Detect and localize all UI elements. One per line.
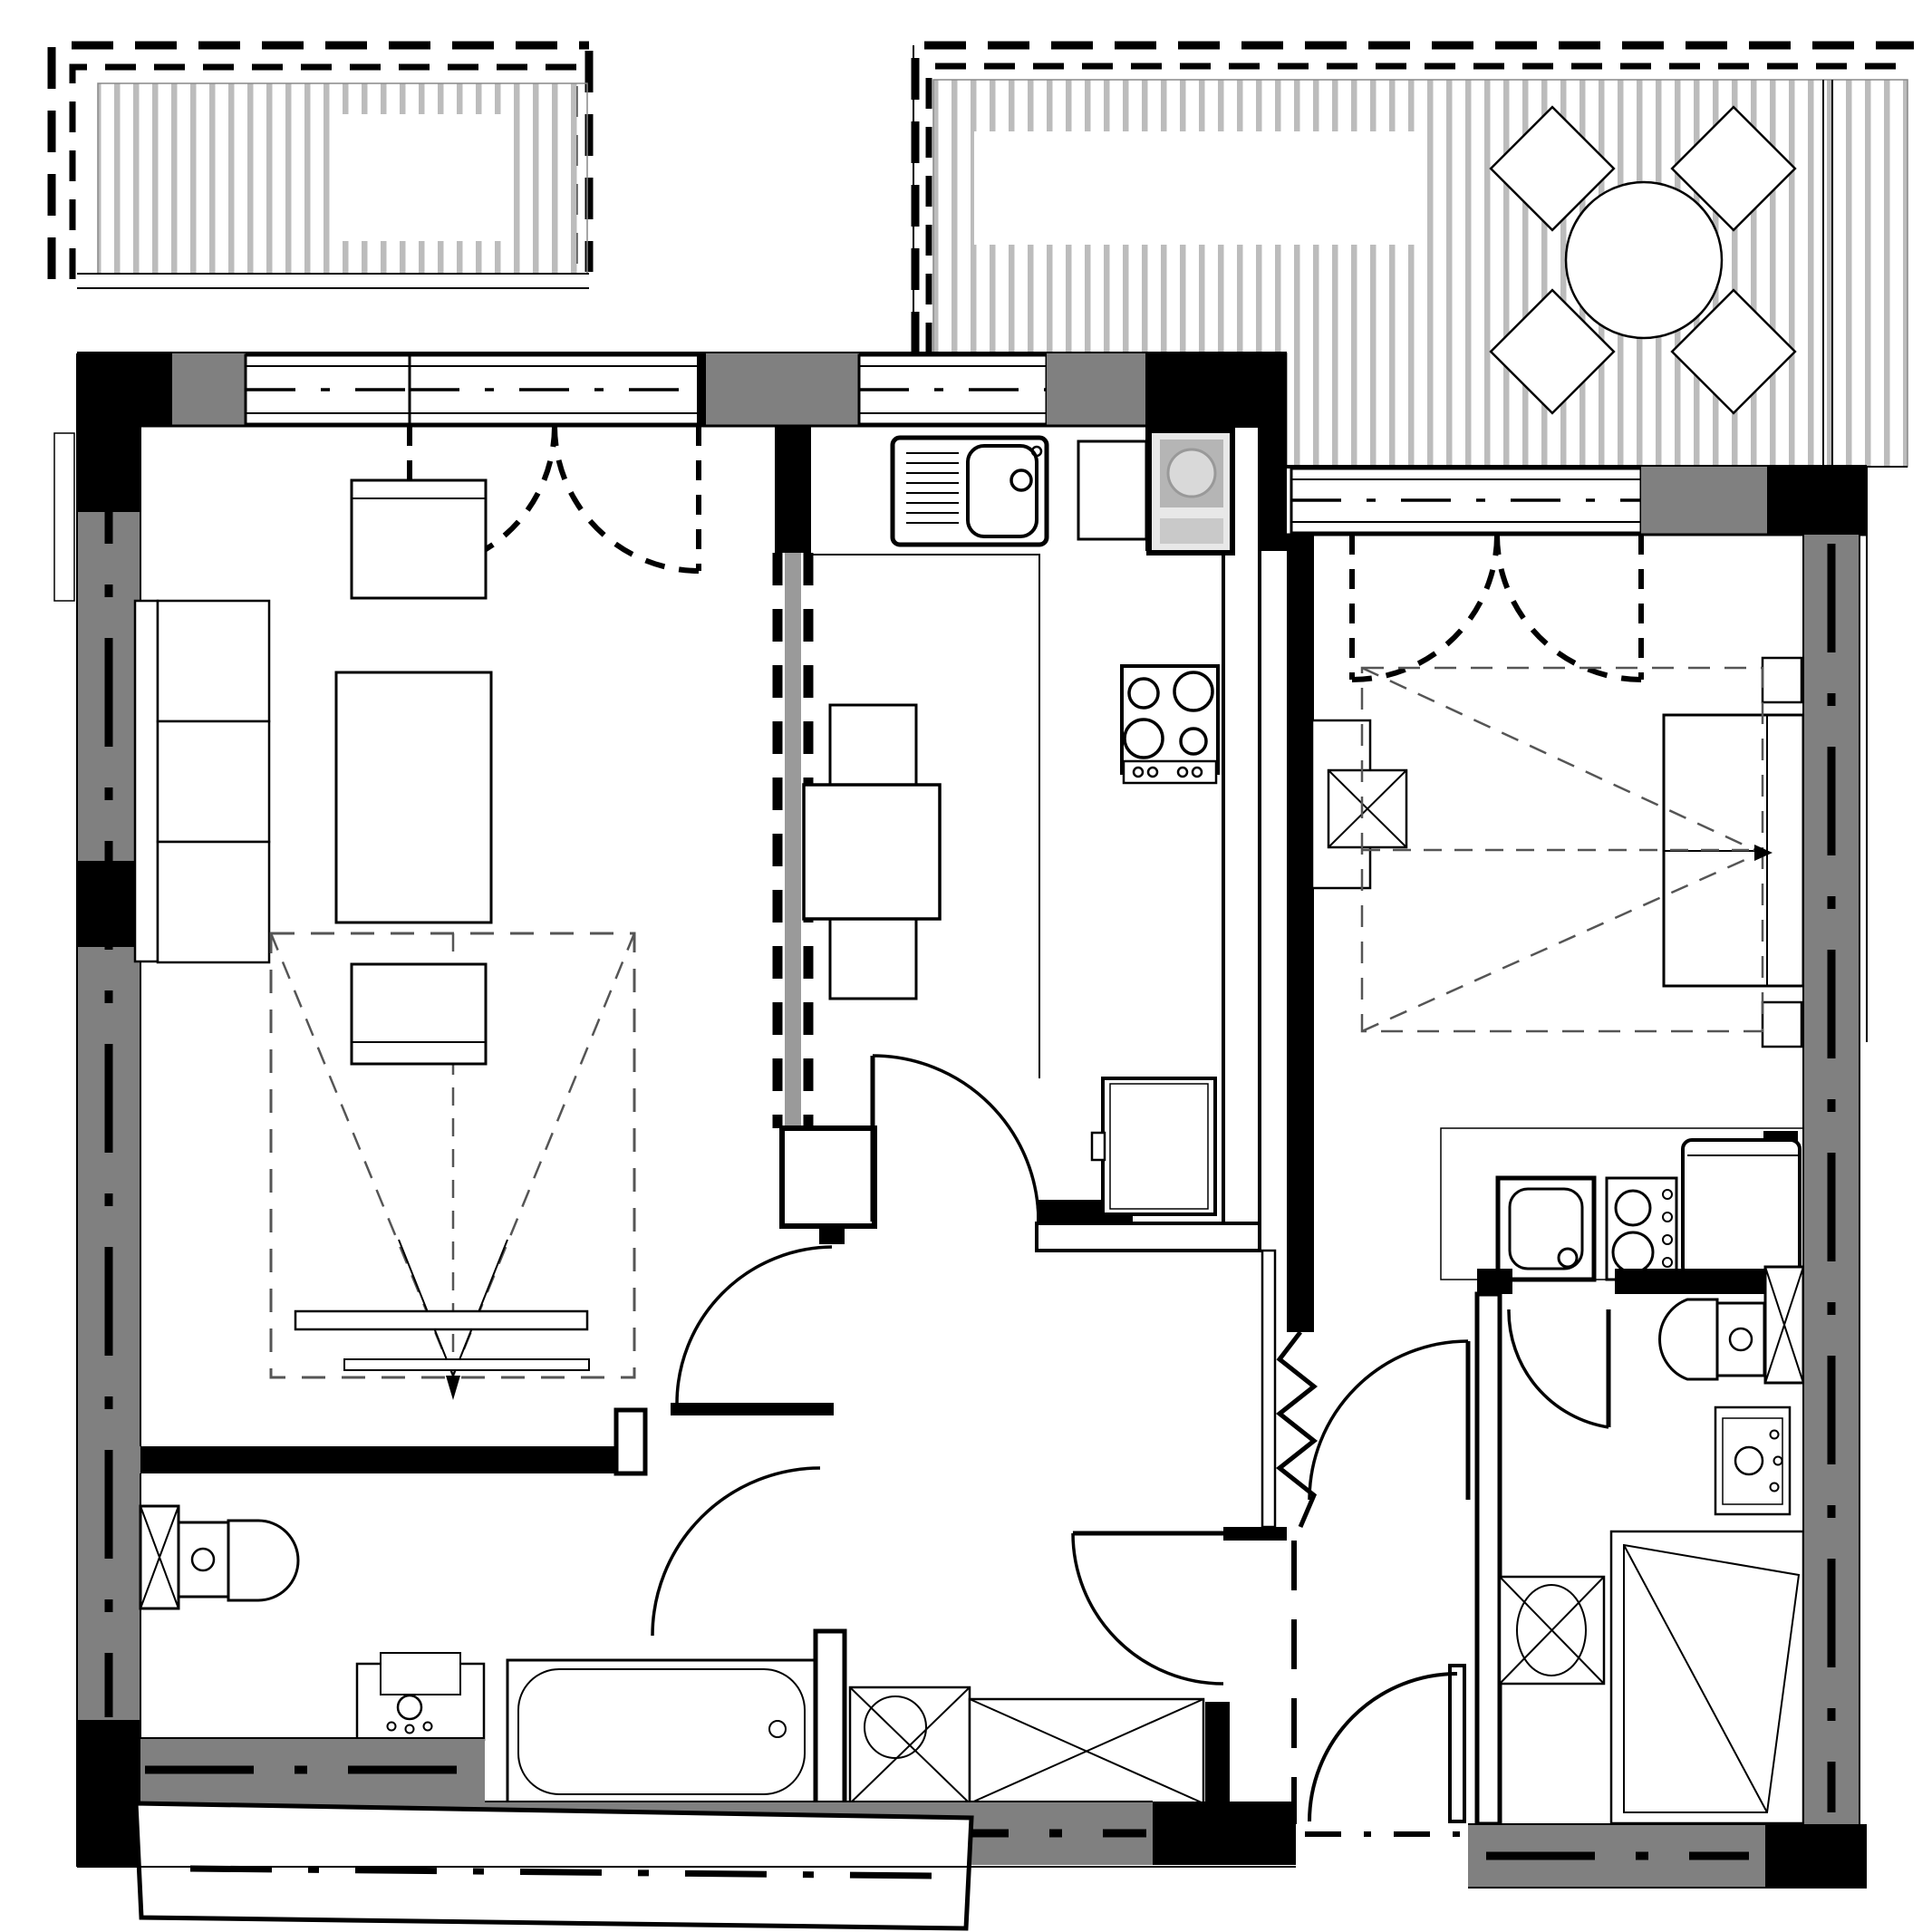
wall-stub (1287, 1271, 1314, 1332)
entrance-door (1305, 1666, 1468, 1834)
door-arc (1309, 1674, 1457, 1821)
door-arc-living-hall (677, 1247, 832, 1404)
sofa-cushion (158, 601, 269, 721)
kitchenette-fridge (1683, 1131, 1800, 1276)
kitchen-door (873, 1056, 1038, 1222)
window-kitchen (859, 355, 1047, 424)
sink-unit (1498, 1178, 1594, 1280)
door-arc (1509, 1309, 1608, 1427)
washing-machine-2 (1500, 1577, 1604, 1684)
dishwasher (1078, 441, 1146, 539)
wardrobe-end-post (1205, 1702, 1230, 1803)
fridge-body (1103, 1078, 1215, 1214)
partition-stub (775, 426, 811, 553)
view-line (399, 1240, 453, 1376)
arrow-down-icon (446, 1376, 460, 1400)
wall-pier (172, 353, 246, 426)
sofa (135, 601, 269, 962)
living-room (135, 480, 634, 1400)
living-bottom-wall (140, 1446, 616, 1473)
toilet-tank (1717, 1303, 1764, 1376)
wall-black-segment (77, 1720, 140, 1867)
door-arc-east (1073, 1533, 1223, 1684)
door-post (616, 1410, 645, 1473)
toilet-bowl (228, 1521, 298, 1600)
door-arc-bathroom1 (652, 1468, 820, 1636)
shower-partition-post (816, 1631, 845, 1803)
door-leaf (1450, 1666, 1464, 1821)
dining-chair (830, 705, 916, 787)
desk-and-chair (1312, 720, 1406, 888)
wall-pier (1641, 467, 1767, 535)
washer-panel (1160, 518, 1223, 544)
hob-4-burner (1122, 666, 1218, 783)
kitchenette-hob (1607, 1178, 1676, 1280)
toilet-2 (1660, 1299, 1764, 1379)
exterior-trim (54, 433, 74, 601)
sofa-cushion (158, 842, 269, 962)
kitchen-sink (893, 438, 1047, 545)
terrace-left (52, 45, 589, 288)
door-jamb-wall (782, 1128, 874, 1226)
bedside-table (1763, 1002, 1802, 1047)
basin-box (381, 1653, 460, 1695)
bathtub (507, 1660, 816, 1803)
tv-projection-zone (271, 933, 634, 1400)
dining-table (804, 785, 940, 919)
wall-corner-black (1767, 467, 1867, 535)
bedside-table (1763, 658, 1802, 702)
dining-chair (830, 917, 916, 999)
view-line (453, 1240, 507, 1376)
fridge (1092, 1078, 1215, 1214)
washing-machine-kitchen (1149, 430, 1232, 553)
bathroom2-door (1509, 1309, 1608, 1427)
wall-pier (1047, 353, 1145, 426)
door-arc-dashed (1352, 535, 1497, 680)
armchair (352, 480, 486, 598)
tv-screen (344, 1359, 589, 1370)
bedroom-left-wall (1287, 535, 1314, 1271)
jamb-foot (819, 1226, 845, 1244)
terrace-round-table (1566, 182, 1722, 338)
tv-bench (295, 1311, 587, 1329)
fridge-handle (1092, 1133, 1105, 1160)
toilet-bowl (1660, 1299, 1717, 1379)
washbasin-2 (1715, 1407, 1790, 1514)
exterior-wall-left (54, 353, 140, 1867)
sofa-back (135, 601, 158, 961)
fridge-handle (1763, 1131, 1798, 1142)
window-bedroom-french-door (1291, 469, 1641, 533)
bathroom2-west-wall (1477, 1294, 1500, 1824)
door-arc-dashed (555, 426, 699, 571)
bottom-wall-black-corner (1765, 1824, 1867, 1888)
vanity (1715, 1407, 1790, 1514)
hall-east-wall (1262, 1251, 1275, 1527)
kitchenette-sink (1498, 1178, 1594, 1280)
kitchenette (1441, 1128, 1803, 1280)
sofa-cushion (158, 721, 269, 842)
bottom-wall-black-post (1153, 1802, 1296, 1865)
bathroom-2 (1477, 1267, 1803, 1824)
studio-entry-door (1309, 1341, 1468, 1500)
dining-set (804, 705, 940, 999)
window-jamb (697, 353, 706, 426)
hall-wall-piece (671, 1403, 834, 1415)
french-door-swing-bedroom (1352, 535, 1641, 680)
window-living-1 (246, 355, 410, 424)
kitchen-bottom-wall (1037, 1223, 1260, 1251)
toilet-1 (179, 1521, 298, 1600)
door-arc (873, 1056, 1038, 1222)
decking-gap (974, 131, 1427, 245)
door-arc-dashed (1497, 535, 1641, 680)
washer-drum (1168, 449, 1215, 497)
wall-pier (706, 353, 859, 426)
floor-plan (0, 0, 1932, 1932)
fridge-body (1683, 1140, 1800, 1276)
window-living-2-french-door (410, 355, 699, 424)
door-arc (1309, 1341, 1468, 1500)
decking-gap (333, 114, 509, 241)
shower-2 (1611, 1531, 1803, 1823)
bathroom2-wall-left (1477, 1269, 1512, 1294)
coffee-table (336, 672, 491, 923)
exterior-wall-right (1803, 535, 1860, 1824)
toilet-tank (179, 1522, 228, 1597)
kitchen (804, 430, 1232, 1222)
washbasin-1 (357, 1653, 484, 1740)
door-hinge-wall (1223, 1527, 1287, 1541)
exterior-wall-top-right-unit (1287, 467, 1867, 680)
ottoman (352, 964, 486, 1064)
sink-basin (968, 446, 1037, 536)
